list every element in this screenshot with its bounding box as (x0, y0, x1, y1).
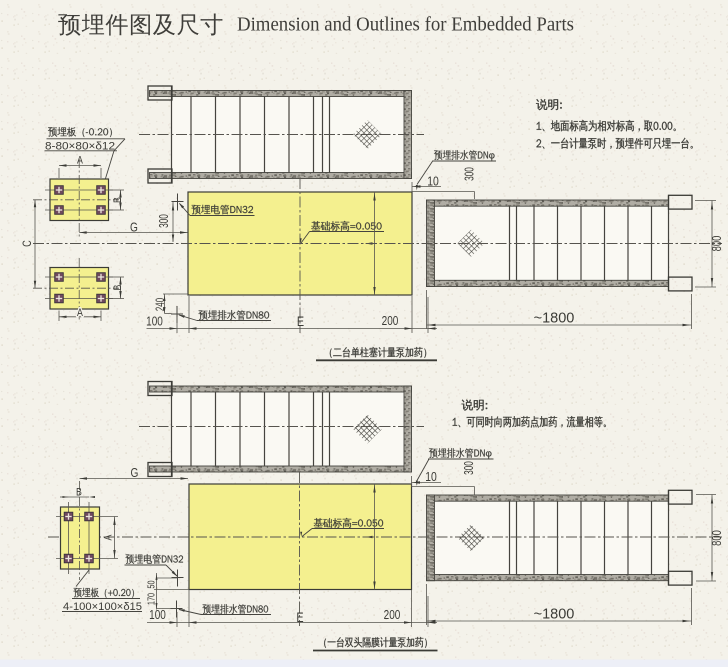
svg-text:A: A (103, 534, 115, 540)
svg-text:100: 100 (146, 316, 163, 329)
svg-text:G: G (131, 466, 139, 480)
svg-text:G: G (130, 220, 138, 234)
svg-text:A: A (77, 155, 83, 167)
svg-text:C: C (22, 240, 34, 247)
svg-text:~1800: ~1800 (534, 311, 575, 327)
svg-text:~1800: ~1800 (534, 607, 575, 623)
svg-text:8-80×80×δ12: 8-80×80×δ12 (45, 141, 115, 153)
svg-text:170: 170 (145, 593, 157, 605)
svg-text:10: 10 (425, 470, 437, 484)
svg-text:300: 300 (462, 461, 476, 475)
svg-text:240: 240 (155, 298, 168, 311)
svg-text:A: A (77, 307, 83, 319)
svg-text:4-100×100×δ15: 4-100×100×δ15 (63, 601, 142, 613)
svg-text:300: 300 (157, 214, 171, 228)
svg-text:50: 50 (145, 580, 157, 588)
svg-text:B: B (112, 284, 124, 290)
svg-text:E: E (297, 314, 304, 329)
svg-text:200: 200 (384, 609, 401, 622)
svg-text:Dimension and Outlines for Emb: Dimension and Outlines for Embedded Part… (237, 15, 574, 36)
svg-text:B: B (76, 487, 82, 499)
svg-text:10: 10 (427, 174, 439, 188)
svg-text:100: 100 (149, 609, 166, 622)
svg-text:B: B (112, 197, 124, 203)
svg-text:800: 800 (711, 236, 725, 252)
svg-text:800: 800 (711, 530, 725, 546)
svg-text:200: 200 (382, 315, 399, 328)
svg-text:E: E (296, 610, 303, 625)
svg-text:300: 300 (463, 167, 477, 181)
